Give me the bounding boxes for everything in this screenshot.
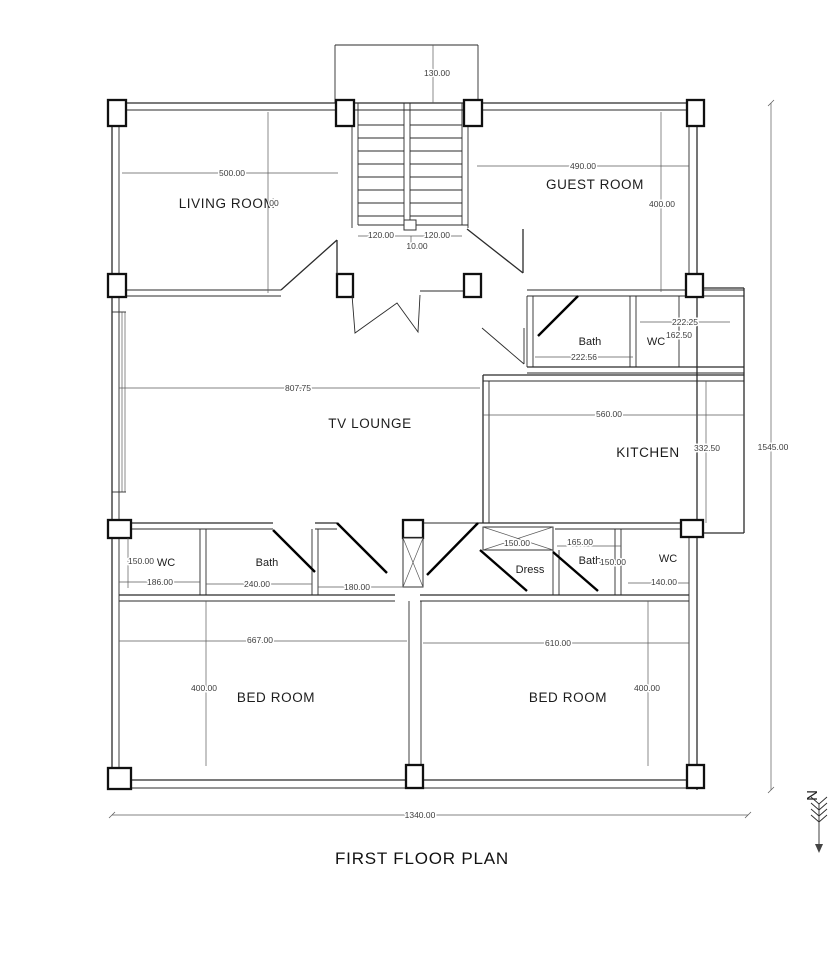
room-label-living-room: LIVING ROOM bbox=[179, 196, 276, 211]
room-label-guest-room: GUEST ROOM bbox=[546, 177, 644, 192]
north-arrowhead bbox=[815, 844, 823, 853]
room-label-bath-left: Bath bbox=[256, 557, 279, 569]
dim-closet-width: 150.00 bbox=[504, 538, 530, 548]
duct-shaft bbox=[403, 538, 423, 587]
room-label-dress: Dress bbox=[516, 564, 545, 576]
labels: 130.00 500.00 LIVING ROOM 00 490.00 GUES… bbox=[128, 68, 789, 868]
room-label-bath-right: Bath bbox=[579, 555, 602, 567]
room-label-bath-top: Bath bbox=[579, 336, 602, 348]
dim-bath-right-width: 165.00 bbox=[567, 537, 593, 547]
dim-guest-height: 400.00 bbox=[649, 199, 675, 209]
room-label-bedroom-right: BED ROOM bbox=[529, 690, 607, 705]
dim-stair-right-flight: 120.00 bbox=[424, 230, 450, 240]
dim-total-width: 1340.00 bbox=[405, 810, 436, 820]
dim-stair-left-flight: 120.00 bbox=[368, 230, 394, 240]
dim-hall-width: 180.00 bbox=[344, 582, 370, 592]
room-label-kitchen: KITCHEN bbox=[616, 445, 679, 460]
dim-living-height-partial: 00 bbox=[269, 198, 279, 208]
dim-bed-right-height: 400.00 bbox=[634, 683, 660, 693]
dim-guest-width: 490.00 bbox=[570, 161, 596, 171]
dim-stair-mid: 10.00 bbox=[406, 241, 428, 251]
north-arrow: N bbox=[803, 790, 827, 853]
dim-wc-right-width: 140.00 bbox=[651, 577, 677, 587]
staircase bbox=[335, 45, 478, 230]
dim-bed-right-width: 610.00 bbox=[545, 638, 571, 648]
dim-wc-left-width: 186.00 bbox=[147, 577, 173, 587]
floor-plan-page: 130.00 500.00 LIVING ROOM 00 490.00 GUES… bbox=[0, 0, 828, 961]
dim-bath-right-height: 150.00 bbox=[600, 557, 626, 567]
break-line bbox=[352, 295, 420, 333]
dim-lounge-width: 807.75 bbox=[285, 383, 311, 393]
dim-stair-width: 130.00 bbox=[424, 68, 450, 78]
dim-wc-top-a: 222.25 bbox=[672, 317, 698, 327]
dim-total-height: 1545.00 bbox=[758, 442, 789, 452]
dimension-lines bbox=[109, 45, 774, 818]
dim-kitchen-height: 332.50 bbox=[694, 443, 720, 453]
dim-kitchen-width: 560.00 bbox=[596, 409, 622, 419]
dim-living-width: 500.00 bbox=[219, 168, 245, 178]
room-label-wc-left: WC bbox=[157, 557, 175, 569]
plan-title: FIRST FLOOR PLAN bbox=[335, 849, 509, 868]
room-label-wc-top: WC bbox=[647, 336, 665, 348]
dim-bath-left-width: 240.00 bbox=[244, 579, 270, 589]
dim-bed-left-width: 667.00 bbox=[247, 635, 273, 645]
room-label-tv-lounge: TV LOUNGE bbox=[328, 416, 411, 431]
room-label-bedroom-left: BED ROOM bbox=[237, 690, 315, 705]
dim-bath-top-width: 222.56 bbox=[571, 352, 597, 362]
floor-plan-drawing: 130.00 500.00 LIVING ROOM 00 490.00 GUES… bbox=[0, 0, 828, 961]
room-label-wc-right: WC bbox=[659, 553, 677, 565]
dim-bed-left-height: 400.00 bbox=[191, 683, 217, 693]
dim-wc-left-height: 150.00 bbox=[128, 556, 154, 566]
dim-wc-top-b: 162.50 bbox=[666, 330, 692, 340]
north-label: N bbox=[803, 790, 820, 801]
